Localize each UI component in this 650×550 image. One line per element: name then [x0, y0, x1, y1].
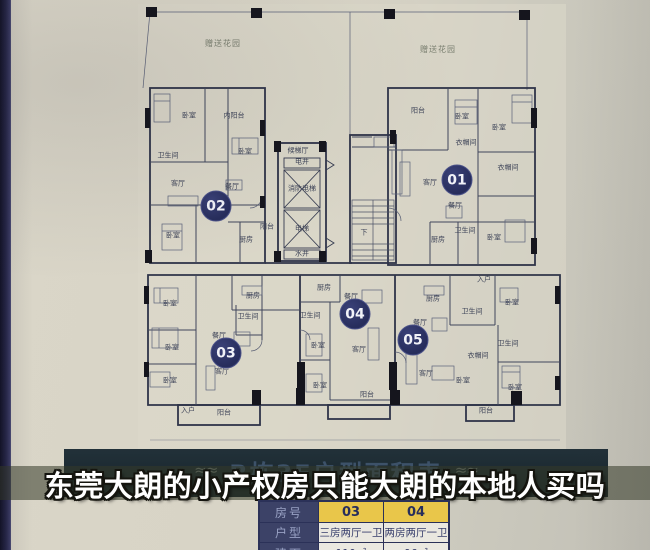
room-label: 卧室	[505, 300, 519, 307]
room-label: 衣帽间	[456, 140, 477, 147]
unit-number-badge: 05	[398, 325, 429, 356]
table-row: 建面110㎡96㎡	[260, 542, 448, 550]
unit-number-badge: 03	[211, 338, 242, 369]
caption-text: 东莞大朗的小产权房只能大朗的本地人买吗	[0, 463, 650, 505]
room-label: 消防电梯	[288, 186, 316, 193]
table-row-label: 建面	[260, 543, 318, 550]
room-label: 卫生间	[498, 341, 519, 348]
unit-area-table: 房号0304户型三房两厅一卫两房两厅一卫建面110㎡96㎡	[258, 500, 450, 550]
room-label: 卧室	[182, 113, 196, 120]
room-label: 厨房	[239, 237, 253, 244]
table-row: 房号0304	[260, 502, 448, 522]
floor-plan-drawing	[0, 0, 650, 460]
room-label: 卧室	[163, 378, 177, 385]
garden-label: 赠送花园	[205, 40, 241, 48]
room-label: 厨房	[317, 285, 331, 292]
room-label: 下	[361, 230, 368, 237]
table-cell: 04	[383, 502, 448, 522]
floorplan-photo: 赠送花园赠送花园卧室内阳台卫生间卧室客厅餐厅卧室厨房阳台阳台卧室卧室衣帽间衣帽间…	[0, 0, 650, 550]
room-label: 阳台	[411, 108, 425, 115]
room-label: 客厅	[171, 181, 185, 188]
room-label: 阳台	[260, 224, 274, 231]
table-row-label: 房号	[260, 502, 318, 522]
room-label: 客厅	[423, 180, 437, 187]
room-label: 卧室	[165, 345, 179, 352]
room-label: 卧室	[311, 343, 325, 350]
room-label: 厨房	[431, 237, 445, 244]
room-label: 卧室	[166, 233, 180, 240]
room-label: 电井	[295, 159, 309, 166]
room-label: 卧室	[313, 383, 327, 390]
room-label: 卫生间	[238, 314, 259, 321]
room-label: 卫生间	[158, 153, 179, 160]
unit-number-badge: 01	[442, 165, 473, 196]
table-cell: 110㎡	[318, 543, 383, 550]
room-label: 卧室	[238, 149, 252, 156]
room-label: 卧室	[487, 235, 501, 242]
room-label: 水井	[295, 251, 309, 258]
room-label: 衣帽间	[468, 353, 489, 360]
room-label: 卫生间	[300, 313, 321, 320]
room-label: 卫生间	[462, 309, 483, 316]
room-label: 卧室	[163, 301, 177, 308]
room-label: 阳台	[479, 408, 493, 415]
table-row: 户型三房两厅一卫两房两厅一卫	[260, 522, 448, 542]
room-label: 衣帽间	[498, 165, 519, 172]
room-label: 厨房	[426, 296, 440, 303]
room-label: 餐厅	[225, 184, 239, 191]
room-label: 餐厅	[448, 203, 462, 210]
room-label: 卧室	[492, 125, 506, 132]
room-label: 入户	[181, 408, 195, 415]
room-label: 电梯	[295, 226, 309, 233]
room-label: 卧室	[508, 385, 522, 392]
room-label: 卧室	[455, 114, 469, 121]
table-cell: 三房两厅一卫	[318, 523, 383, 542]
table-cell: 03	[318, 502, 383, 522]
room-label: 候梯厅	[288, 148, 309, 155]
room-label: 卫生间	[455, 228, 476, 235]
room-label: 卧室	[456, 378, 470, 385]
room-label: 内阳台	[224, 113, 245, 120]
room-label: 阳台	[360, 392, 374, 399]
table-cell: 96㎡	[383, 543, 448, 550]
garden-label: 赠送花园	[420, 46, 456, 54]
unit-number-badge: 04	[340, 299, 371, 330]
room-label: 客厅	[419, 371, 433, 378]
unit-number-badge: 02	[201, 191, 232, 222]
room-label: 客厅	[352, 347, 366, 354]
table-row-label: 户型	[260, 523, 318, 542]
room-label: 入户	[477, 277, 491, 284]
table-cell: 两房两厅一卫	[383, 523, 448, 542]
room-label: 客厅	[215, 369, 229, 376]
room-label: 厨房	[246, 293, 260, 300]
room-label: 阳台	[217, 410, 231, 417]
